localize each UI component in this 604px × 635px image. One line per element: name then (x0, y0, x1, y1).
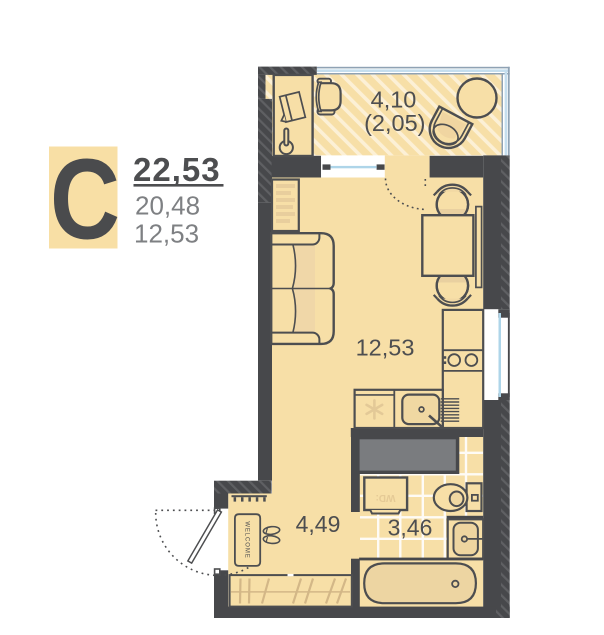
svg-text:22,53: 22,53 (133, 151, 221, 188)
svg-text:C: C (50, 136, 120, 263)
svg-text:12,53: 12,53 (356, 335, 415, 361)
svg-text:20,48: 20,48 (135, 191, 200, 221)
svg-text:(2,05): (2,05) (364, 110, 425, 136)
svg-text:WELCOME: WELCOME (243, 521, 249, 558)
svg-text:WD:: WD: (376, 492, 396, 503)
svg-text:12,53: 12,53 (134, 219, 199, 249)
svg-text:4,10: 4,10 (371, 87, 417, 113)
svg-text:4,49: 4,49 (296, 511, 341, 537)
svg-text:3,46: 3,46 (388, 515, 433, 541)
